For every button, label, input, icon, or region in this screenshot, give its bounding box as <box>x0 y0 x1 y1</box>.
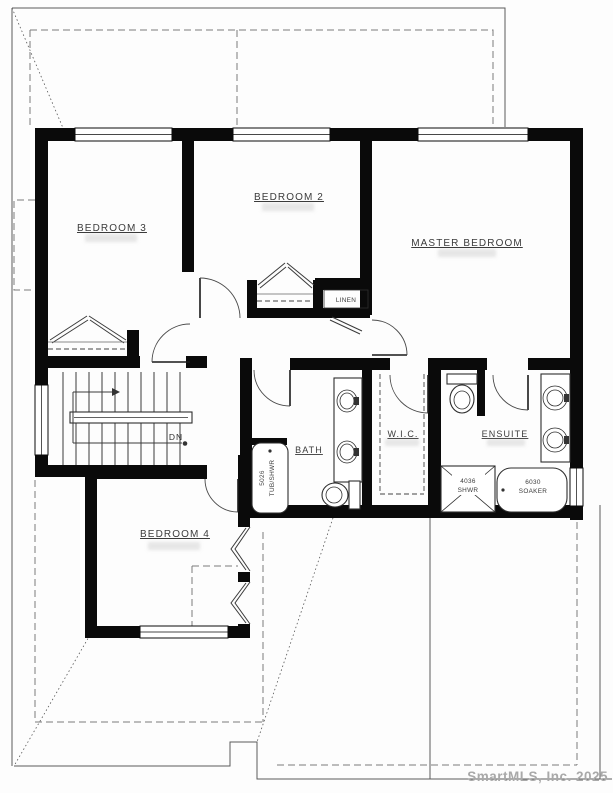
bedroom4-label: BEDROOM 4 <box>140 529 210 540</box>
wic-label: W.I.C. <box>387 429 418 439</box>
master-door <box>372 320 407 355</box>
window <box>418 128 528 141</box>
wic-door <box>390 375 428 413</box>
bath-door <box>254 370 290 406</box>
soaker-size-label: 6030 <box>525 479 541 486</box>
interior-walls <box>35 128 583 518</box>
window <box>35 385 48 455</box>
faucet <box>354 448 359 456</box>
bedroom3-label: BEDROOM 3 <box>77 223 147 234</box>
faucet <box>564 436 569 444</box>
ensuite-door <box>493 375 528 410</box>
ensuite-soaker-tub: 6030 SOAKER <box>497 468 567 512</box>
bedroom2-door <box>200 278 240 318</box>
bedroom2-label: BEDROOM 2 <box>254 192 324 203</box>
faucet <box>354 397 359 405</box>
bedroom3-door <box>152 324 190 362</box>
faucet <box>564 394 569 402</box>
tub-size-label: 5026 <box>259 470 266 486</box>
floor-plan-drawing: DN 5026 TUB/SHWR <box>0 0 613 793</box>
bath-vanity <box>334 378 362 482</box>
window <box>140 626 228 638</box>
ensuite-toilet <box>447 374 477 413</box>
watermark: SmartMLS, Inc. 2025 <box>467 769 608 784</box>
bath-tub: 5026 TUB/SHWR <box>252 443 288 513</box>
soaker-type-label: SOAKER <box>519 488 548 495</box>
window <box>233 128 330 141</box>
stairs-dn-label: DN <box>169 432 183 442</box>
bedroom3-closet <box>48 316 127 349</box>
bath-toilet <box>322 481 360 509</box>
ensuite-shower: 4036 SHWR <box>441 466 495 512</box>
bath-label: BATH <box>295 445 323 455</box>
linen-label: LINEN <box>336 297 356 304</box>
floor-plan-sheet: DN 5026 TUB/SHWR <box>0 0 613 793</box>
bedroom4-door <box>205 479 238 512</box>
staircase: DN <box>63 372 192 465</box>
tub-type-label: TUB/SHWR <box>269 460 276 497</box>
bedroom2-closet <box>257 263 314 301</box>
shower-type-label: SHWR <box>458 487 479 494</box>
ensuite-label: ENSUITE <box>482 429 529 439</box>
master-bedroom-label: MASTER BEDROOM <box>411 238 523 249</box>
shower-size-label: 4036 <box>460 478 476 485</box>
ensuite-vanity <box>541 374 570 462</box>
window <box>570 468 583 506</box>
window <box>75 128 172 141</box>
